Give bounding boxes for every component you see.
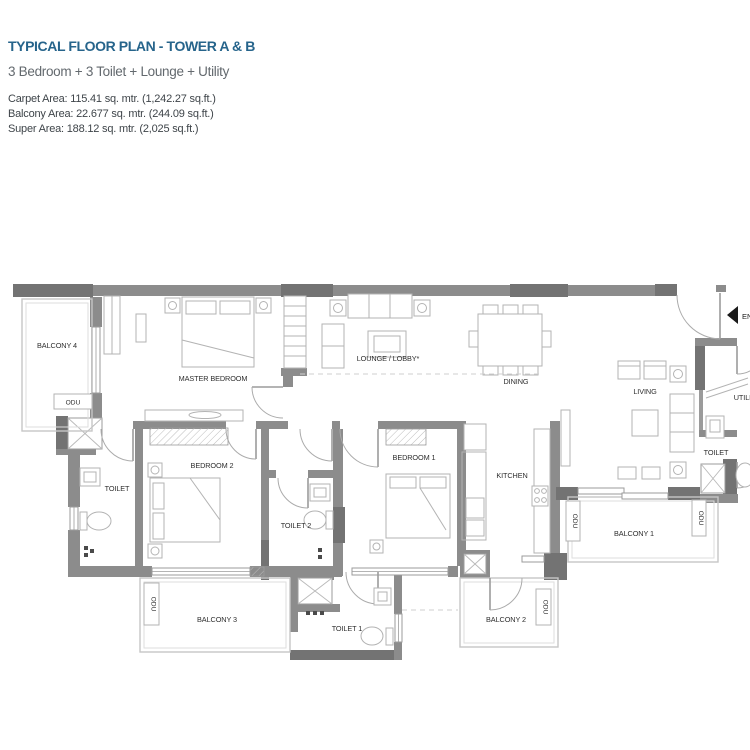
label-balcony-3: BALCONY 3	[197, 615, 237, 624]
label-bedroom-2: BEDROOM 2	[191, 461, 234, 470]
basin	[80, 468, 100, 486]
utility-door	[737, 346, 750, 374]
wc	[736, 463, 750, 487]
tv-console	[145, 410, 243, 421]
odu-balcony-1-right: ODU	[692, 500, 706, 536]
sofa-3-seat	[348, 294, 412, 318]
master-bedroom-door	[252, 387, 283, 418]
kitchen-furniture	[462, 424, 550, 553]
odu-label: ODU	[542, 600, 549, 615]
odu-balcony-3: ODU	[144, 583, 159, 625]
bedroom-2-door	[226, 429, 256, 459]
label-living: LIVING	[633, 387, 657, 396]
living-sofa	[670, 394, 694, 452]
wardrobe	[150, 428, 228, 445]
service-shaft-icon	[68, 418, 102, 449]
label-toilet-2: TOILET 2	[281, 521, 312, 530]
bed	[150, 478, 220, 542]
toilet-master-door	[101, 429, 133, 461]
bedroom-1-furniture	[370, 429, 450, 553]
label-toilet-1: TOILET 1	[332, 624, 363, 633]
label-balcony-4: BALCONY 4	[37, 341, 77, 350]
shower-toilet1-icon	[298, 578, 332, 604]
basin	[310, 484, 330, 501]
floor-plan-page: TYPICAL FLOOR PLAN - TOWER A & B 3 Bedro…	[0, 0, 750, 750]
tv-unit	[561, 410, 570, 466]
odu-label: ODU	[66, 400, 81, 407]
wc-tank	[326, 511, 333, 529]
odu-label: ODU	[150, 597, 157, 612]
label-kitchen: KITCHEN	[496, 471, 527, 480]
entry-arrow-icon	[727, 306, 738, 324]
washing-machine	[706, 416, 724, 438]
shelf-unit	[284, 296, 306, 368]
odu-balcony-2: ODU	[536, 589, 551, 625]
entry-label: ENTRY	[742, 312, 750, 321]
utility-fixtures	[706, 378, 748, 438]
odu-label: ODU	[571, 514, 578, 529]
living-coffee-table	[632, 410, 658, 436]
entry-marker: ENTRY	[727, 306, 750, 324]
bedroom-2-furniture	[148, 428, 228, 558]
kitchen-balcony-2-door	[490, 578, 522, 610]
passage-door	[300, 429, 332, 461]
basin	[374, 588, 391, 605]
living-furniture	[561, 361, 694, 479]
sink	[466, 498, 484, 518]
dining-table	[478, 314, 542, 366]
label-master-bedroom: MASTER BEDROOM	[179, 374, 248, 383]
duct-icon	[464, 554, 486, 574]
dining-furniture	[469, 305, 551, 375]
label-lounge: LOUNGE / LOBBY*	[357, 354, 420, 363]
bedroom-1-door	[340, 429, 378, 467]
odu-label: ODU	[697, 511, 704, 526]
fridge	[464, 424, 486, 450]
toilet-right-fixtures	[736, 463, 750, 487]
master-bedroom-furniture	[104, 296, 271, 421]
wc-tank	[80, 512, 87, 530]
label-bedroom-1: BEDROOM 1	[393, 453, 436, 462]
odu-balcony-4: ODU	[54, 394, 92, 409]
odu-balcony-1-left: ODU	[566, 501, 580, 541]
label-dining: DINING	[504, 377, 529, 386]
master-bed	[182, 297, 254, 367]
wc-tank	[386, 628, 393, 645]
label-balcony-1: BALCONY 1	[614, 529, 654, 538]
toilet-2-door	[278, 478, 308, 508]
bed	[386, 474, 450, 538]
label-balcony-2: BALCONY 2	[486, 615, 526, 624]
label-toilet-right: TOILET	[704, 448, 729, 457]
wc	[87, 512, 111, 530]
toilet-master-fixtures	[80, 468, 111, 557]
shower-toilet-right-icon	[701, 464, 725, 493]
wc	[361, 627, 383, 645]
balcony-4-rail	[22, 299, 92, 431]
label-utility: UTILITY	[734, 393, 750, 402]
entry-door	[677, 293, 720, 339]
wardrobe	[386, 429, 426, 445]
toilet-1-door	[346, 572, 378, 604]
floor-plan-drawing: ODU ODU ODU ODU ODU ENTRY MASTER BEDROOM	[0, 0, 750, 750]
label-toilet-master: TOILET	[105, 484, 130, 493]
